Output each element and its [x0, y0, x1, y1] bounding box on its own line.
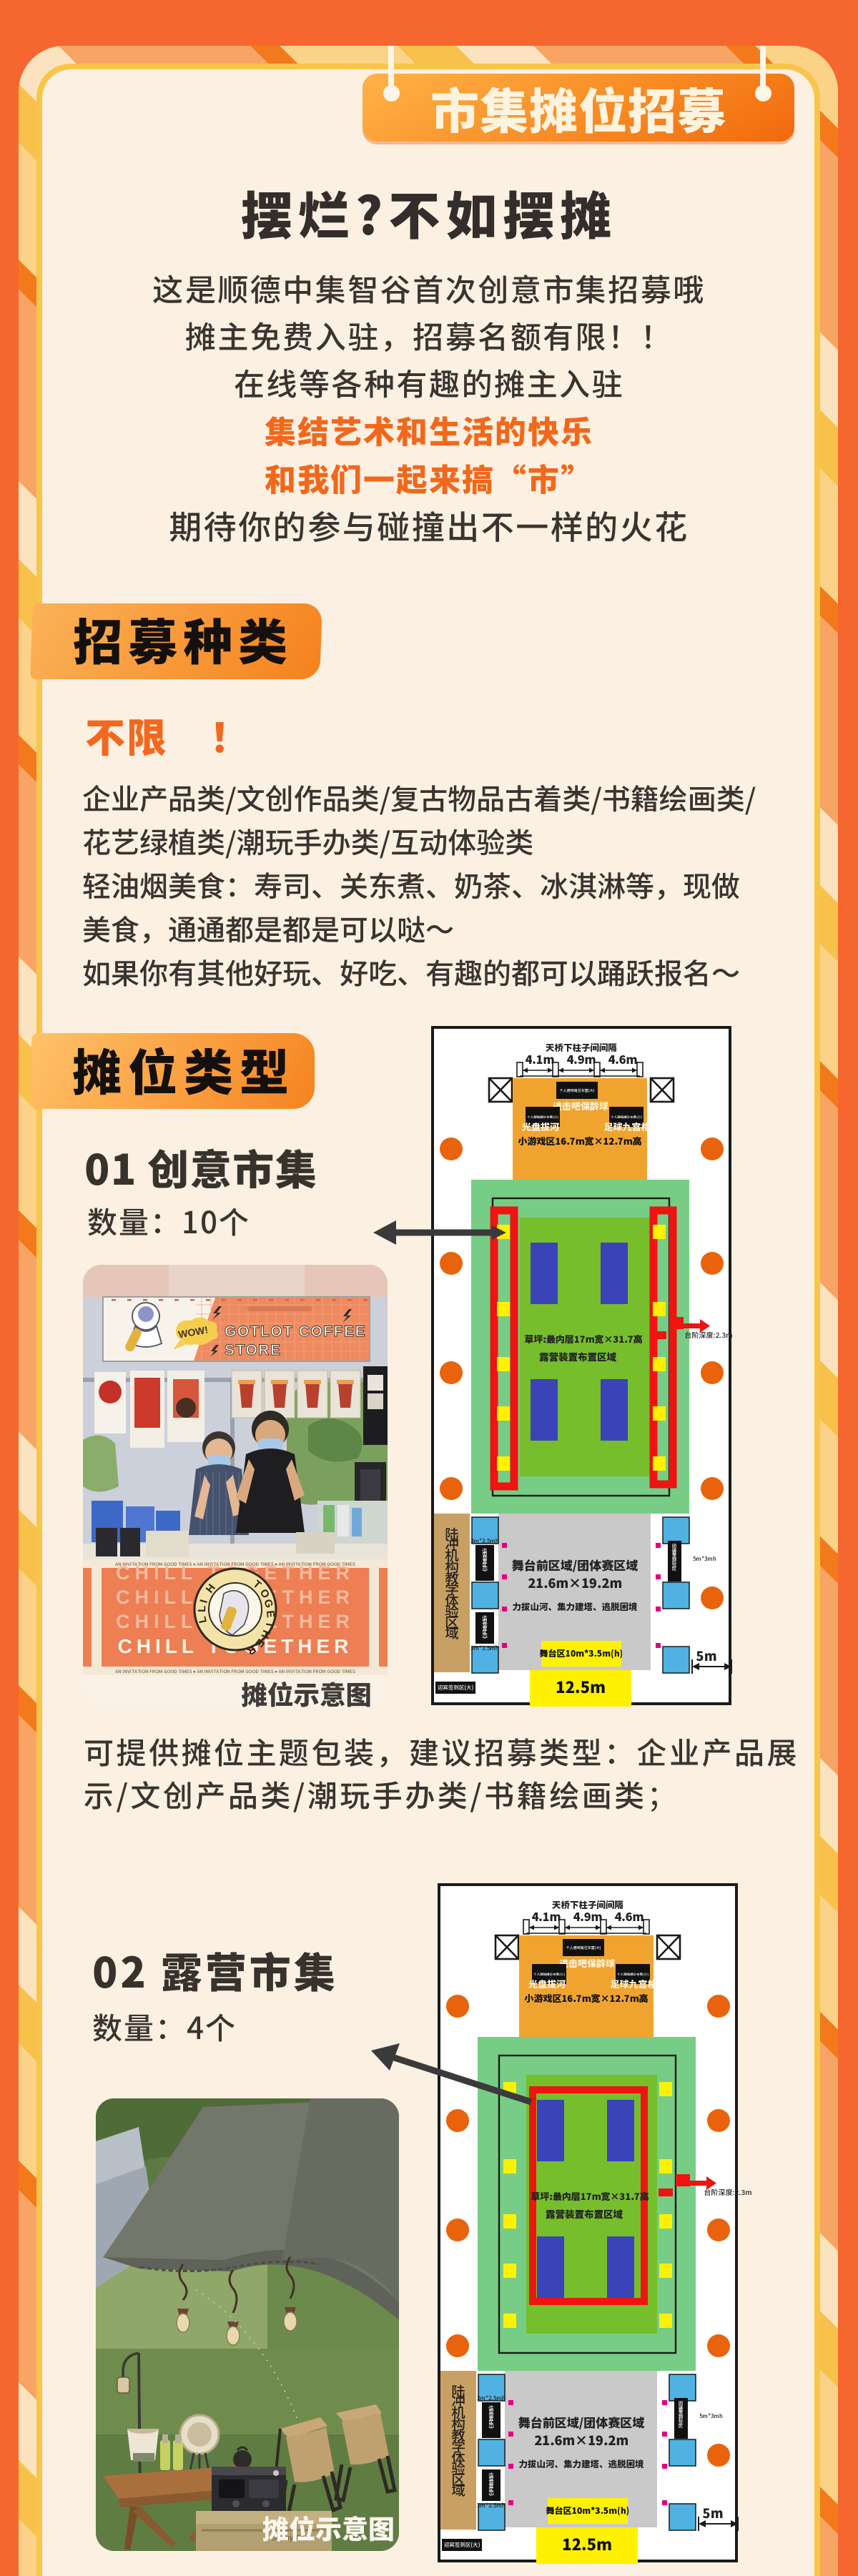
svg-text:4.1m: 4.1m: [526, 1050, 555, 1067]
svg-text:造型装置区(小): 造型装置区(小): [488, 2405, 495, 2429]
svg-text:4.9m: 4.9m: [573, 1908, 603, 1925]
svg-text:E: E: [264, 1610, 277, 1618]
svg-text:个人趣味摊位布置(小): 个人趣味摊位布置(小): [533, 1972, 565, 1977]
svg-text:STORE: STORE: [225, 1342, 281, 1358]
svg-text:迎宾签到区(大): 迎宾签到区(大): [438, 1684, 473, 1692]
svg-text:进击吧保龄球: 进击吧保龄球: [553, 1099, 609, 1112]
svg-text:个人趣味摊位布置(小): 个人趣味摊位布置(小): [617, 1972, 649, 1977]
svg-text:台阶深度:2.3m: 台阶深度:2.3m: [685, 1329, 733, 1340]
svg-text:12.5m: 12.5m: [556, 1675, 606, 1698]
svg-text:21.6m×19.2m: 21.6m×19.2m: [528, 1574, 622, 1592]
svg-text:团体赛事物料放区: 团体赛事物料放区: [677, 2401, 684, 2427]
svg-text:台阶深度:2.3m: 台阶深度:2.3m: [704, 2186, 752, 2197]
svg-text:造型装置区(小): 造型装置区(小): [481, 1548, 488, 1572]
svg-text:迎宾签到区(大): 迎宾签到区(大): [444, 2541, 480, 2549]
svg-text:21.6m×19.2m: 21.6m×19.2m: [534, 2431, 628, 2449]
svg-text:3m*2.5mh: 3m*2.5mh: [470, 1644, 499, 1652]
svg-text:4.6m: 4.6m: [615, 1908, 644, 1925]
svg-text:5m*3mh: 5m*3mh: [692, 1555, 716, 1563]
svg-text:5m: 5m: [696, 1647, 717, 1665]
svg-text:4.9m: 4.9m: [567, 1050, 596, 1067]
svg-text:陆冲机构教学体验区域: 陆冲机构教学体验区域: [448, 2384, 469, 2497]
svg-text:3m*2.5mh: 3m*2.5mh: [477, 2394, 506, 2402]
svg-text:5m*3mh: 5m*3mh: [699, 2412, 723, 2420]
svg-text:露营装置布置区域: 露营装置布置区域: [539, 1349, 616, 1363]
svg-text:3m*2.5mh: 3m*2.5mh: [470, 1537, 499, 1545]
svg-text:舞台前区域/团体赛区域: 舞台前区域/团体赛区域: [518, 2413, 645, 2431]
svg-text:足球九宫格: 足球九宫格: [610, 1977, 656, 1990]
svg-text:造型装置区(小): 造型装置区(小): [481, 1615, 488, 1639]
svg-text:GOTLOT COFFEE: GOTLOT COFFEE: [225, 1323, 366, 1340]
svg-text:个人趣味摊位布置(大): 个人趣味摊位布置(大): [566, 1945, 601, 1950]
svg-text:露营装置布置区域: 露营装置布置区域: [546, 2206, 623, 2221]
svg-text:L: L: [196, 1605, 208, 1612]
svg-text:小游戏区16.7m宽×12.7m高: 小游戏区16.7m宽×12.7m高: [518, 1134, 641, 1148]
svg-text:3m*2.5mh: 3m*2.5mh: [477, 2502, 506, 2510]
svg-text:草坪:最内层17m宽×31.7高: 草坪:最内层17m宽×31.7高: [531, 2189, 649, 2203]
svg-text:光盘拔河: 光盘拔河: [521, 1120, 559, 1133]
svg-text:陆冲机构教学体验区域: 陆冲机构教学体验区域: [442, 1526, 463, 1639]
svg-text:造型装置区(小): 造型装置区(小): [488, 2472, 495, 2497]
svg-text:舞台前区域/团体赛区域: 舞台前区域/团体赛区域: [512, 1556, 638, 1574]
svg-text:草坪:最内层17m宽×31.7高: 草坪:最内层17m宽×31.7高: [524, 1332, 643, 1346]
svg-text:个人趣味摊位布置(小): 个人趣味摊位布置(小): [611, 1115, 642, 1120]
svg-text:团体赛事物料放区: 团体赛事物料放区: [671, 1544, 678, 1570]
svg-text:力拔山河、集力建塔、逃脱困境: 力拔山河、集力建塔、逃脱困境: [518, 2457, 643, 2470]
svg-text:舞台区10m*3.5m(h): 舞台区10m*3.5m(h): [540, 1647, 623, 1659]
svg-text:5m: 5m: [703, 2504, 724, 2522]
svg-text:个人趣味摊位布置(大): 个人趣味摊位布置(大): [560, 1088, 595, 1093]
svg-text:小游戏区16.7m宽×12.7m高: 小游戏区16.7m宽×12.7m高: [524, 1991, 648, 2005]
svg-text:舞台区10m*3.5m(h): 舞台区10m*3.5m(h): [546, 2505, 630, 2517]
svg-text:12.5m: 12.5m: [562, 2532, 612, 2555]
svg-text:光盘拔河: 光盘拔河: [528, 1977, 566, 1990]
svg-text:4.1m: 4.1m: [532, 1908, 561, 1925]
svg-text:进击吧保龄球: 进击吧保龄球: [559, 1956, 616, 1970]
svg-text:足球九宫格: 足球九宫格: [603, 1120, 650, 1133]
svg-text:4.6m: 4.6m: [608, 1050, 638, 1067]
svg-text:AN INVITATION FROM GOOD TIMES: AN INVITATION FROM GOOD TIMES ● AN INVIT…: [115, 1667, 355, 1674]
svg-text:个人趣味摊位布置(小): 个人趣味摊位布置(小): [527, 1115, 558, 1120]
svg-text:力拔山河、集力建塔、逃脱困境: 力拔山河、集力建塔、逃脱困境: [512, 1599, 637, 1613]
